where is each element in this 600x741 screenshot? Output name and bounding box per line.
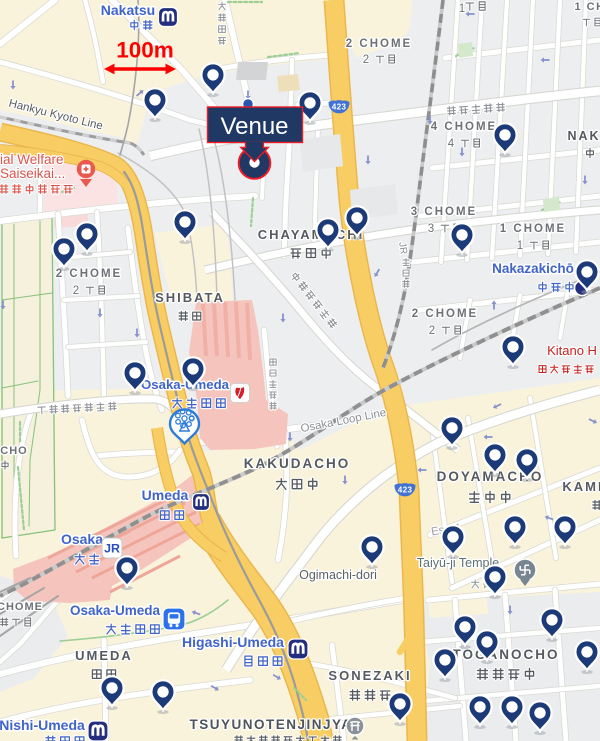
svg-text:TSUYUNOTENJINJYA: TSUYUNOTENJINJYA [189, 717, 352, 732]
svg-text:CHAYAMACHI: CHAYAMACHI [258, 227, 364, 242]
svg-text:SHIBATA: SHIBATA [155, 290, 225, 305]
svg-text:CHO: CHO [0, 445, 27, 457]
svg-text:Umeda: Umeda [142, 487, 189, 503]
svg-text:JR: JR [104, 541, 120, 555]
svg-text:4 CHOME: 4 CHOME [431, 121, 497, 133]
svg-text:ial Welfare: ial Welfare [0, 152, 64, 167]
svg-text:4: 4 [448, 138, 455, 150]
svg-text:2 CHOME: 2 CHOME [412, 308, 478, 320]
svg-text:NAK: NAK [567, 129, 600, 143]
svg-text:Osaka: Osaka [61, 531, 103, 547]
svg-text:Venue: Venue [220, 113, 288, 140]
svg-text:423: 423 [398, 486, 413, 495]
svg-text:2: 2 [363, 54, 369, 66]
svg-text:CHOME: CHOME [0, 601, 43, 613]
svg-text:2 CHOME: 2 CHOME [346, 38, 412, 50]
svg-text:3: 3 [428, 223, 434, 235]
svg-text:Nakatsu: Nakatsu [101, 2, 155, 18]
svg-text:TOGANOCHO: TOGANOCHO [452, 647, 559, 662]
svg-text:Osaka-Umeda: Osaka-Umeda [70, 603, 161, 618]
svg-text:KAMI: KAMI [562, 479, 600, 494]
svg-text:2: 2 [73, 285, 79, 297]
svg-text:1: 1 [517, 240, 523, 252]
svg-text:Nakazakichō: Nakazakichō [492, 261, 574, 276]
svg-text:Ogimachi-dori: Ogimachi-dori [299, 568, 377, 582]
svg-text:SONEZAKI: SONEZAKI [328, 668, 411, 683]
svg-text:1 CHOME: 1 CHOME [500, 223, 566, 235]
svg-text:1: 1 [459, 3, 465, 15]
svg-text:1 CH: 1 CH [574, 1, 600, 13]
svg-text:Saiseikai...: Saiseikai... [0, 166, 65, 181]
svg-text:Higashi-Umeda: Higashi-Umeda [182, 634, 284, 650]
svg-text:2: 2 [429, 325, 435, 337]
svg-text:JR: JR [396, 241, 409, 255]
svg-text:100m: 100m [116, 38, 174, 63]
svg-text:Nishi-Umeda: Nishi-Umeda [0, 717, 85, 733]
svg-text:3 CHOME: 3 CHOME [411, 206, 477, 218]
svg-text:KAKUDACHO: KAKUDACHO [244, 456, 351, 471]
svg-text:UMEDA: UMEDA [75, 648, 133, 663]
svg-text:423: 423 [332, 103, 347, 112]
svg-text:Kitano H: Kitano H [547, 343, 597, 358]
